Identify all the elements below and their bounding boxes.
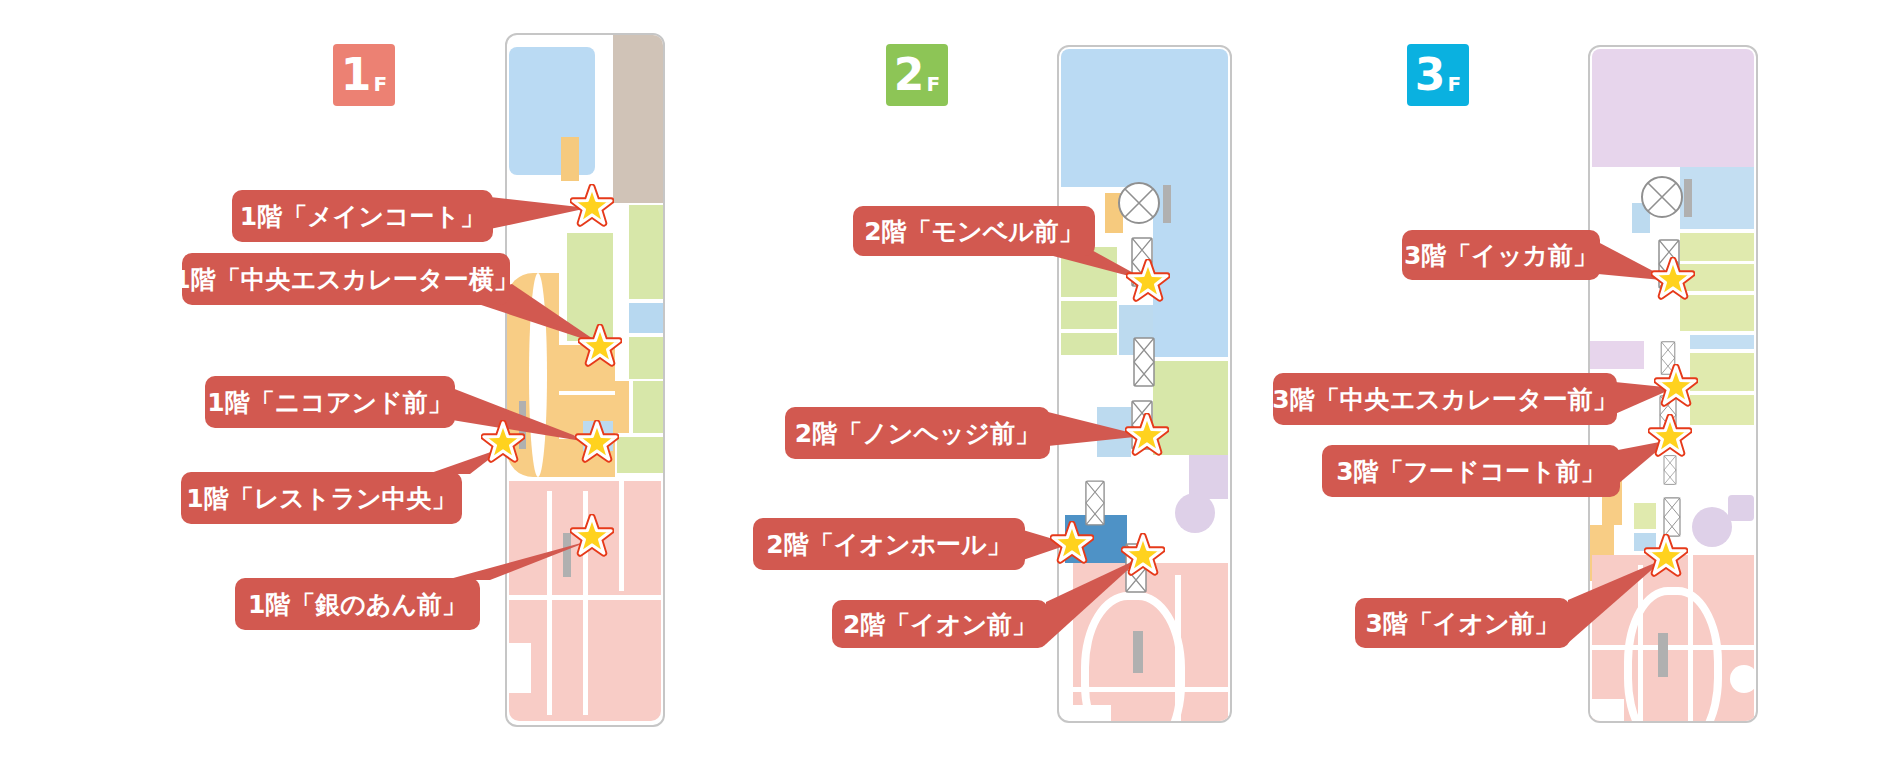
star-marker-1f-central-escalator <box>578 324 622 370</box>
callout-label-2f-aeon: 2階「イオン前」 <box>832 600 1048 648</box>
star-marker-3f-food-court <box>1648 414 1692 460</box>
callout-label-2f-nonhedge: 2階「ノンヘッジ前」 <box>785 407 1050 459</box>
floor-number: 2 <box>894 53 925 97</box>
star-marker-3f-ikka <box>1651 257 1695 303</box>
star-marker-3f-central-escalator <box>1654 364 1698 410</box>
callout-label-3f-food-court: 3階「フードコート前」 <box>1322 445 1620 497</box>
star-marker-2f-montbell <box>1126 259 1170 305</box>
star-marker-1f-restaurant <box>481 420 525 466</box>
region-shop <box>629 303 663 333</box>
walkway <box>619 481 624 591</box>
region-shop <box>633 381 663 433</box>
region-shop <box>617 437 663 473</box>
region-shop <box>629 205 663 299</box>
floor-map-2f <box>1057 45 1232 723</box>
callout-label-1f-central-escalator: 1階「中央エスカレーター横」 <box>182 253 510 305</box>
callout-label-3f-central-escalator: 3階「中央エスカレーター前」 <box>1273 373 1617 425</box>
callout-label-2f-montbell: 2階「モンベル前」 <box>853 206 1095 256</box>
floor-number: 3 <box>1415 53 1446 97</box>
walkway <box>509 595 661 600</box>
region-rest-area <box>1728 495 1754 521</box>
walkway <box>1073 687 1228 692</box>
callout-label-2f-aeon-hall: 2階「イオンホール」 <box>753 518 1025 570</box>
floor-suffix: F <box>1447 72 1461 96</box>
escalator-icon <box>1085 479 1105 527</box>
region-shop <box>1690 335 1754 349</box>
floor-badge-3f: 3F <box>1407 44 1469 106</box>
star-marker-1f-niko-and <box>575 420 619 466</box>
callout-label-3f-ikka: 3階「イッカ前」 <box>1402 230 1600 280</box>
walkway <box>1730 665 1758 693</box>
region-tan-store <box>613 35 663 203</box>
elevator <box>1133 631 1143 673</box>
region-shop <box>629 337 663 379</box>
callout-label-1f-niko-and: 1階「ニコアンド前」 <box>205 376 455 428</box>
floor-number: 1 <box>341 53 372 97</box>
floor-suffix: F <box>373 72 387 96</box>
walkway <box>1175 575 1181 723</box>
star-marker-2f-aeon-hall <box>1050 521 1094 567</box>
walkway <box>1061 297 1117 301</box>
floor-map-figure: 1F 2F 3F <box>0 0 1902 760</box>
central-escalator-landing-icon <box>1640 175 1684 219</box>
star-marker-3f-aeon <box>1644 534 1688 580</box>
callout-label-1f-ginnoan: 1階「銀のあん前」 <box>235 578 480 630</box>
escalator-icon <box>1660 497 1684 537</box>
walkway <box>559 391 615 395</box>
elevator <box>1684 179 1692 217</box>
elevator <box>1658 633 1668 677</box>
region-shop <box>1590 341 1644 369</box>
star-marker-2f-aeon <box>1121 533 1165 579</box>
entrance-notch <box>1590 699 1624 723</box>
escalator-icon <box>1133 335 1155 389</box>
entrance-notch <box>1073 705 1111 723</box>
central-escalator-landing-icon <box>1117 181 1161 225</box>
floor-map-1f <box>505 33 665 727</box>
star-marker-1f-main-court <box>570 184 614 230</box>
region-shop <box>1690 395 1754 425</box>
floor-badge-2f: 2F <box>886 44 948 106</box>
region-shop <box>1061 247 1117 355</box>
region-anchor-store <box>1592 49 1754 167</box>
walkway <box>1061 329 1117 333</box>
star-marker-2f-nonhedge <box>1125 413 1169 459</box>
star-marker-1f-ginnoan <box>570 514 614 560</box>
region-shop <box>561 137 579 181</box>
walkway <box>529 273 547 477</box>
callout-label-1f-restaurant: 1階「レストラン中央」 <box>181 472 462 524</box>
region-rest-area <box>1175 493 1215 533</box>
floor-suffix: F <box>926 72 940 96</box>
region-anchor-store <box>1061 49 1228 187</box>
region-anchor-store <box>509 47 595 175</box>
entrance-notch <box>507 643 531 693</box>
region-rest-area <box>1692 507 1732 547</box>
floor-badge-1f: 1F <box>333 44 395 106</box>
callout-label-1f-main-court: 1階「メインコート」 <box>232 190 493 242</box>
walkway <box>547 491 552 715</box>
region-shop <box>1690 353 1754 391</box>
elevator <box>1163 185 1171 223</box>
callout-label-3f-aeon: 3階「イオン前」 <box>1355 598 1570 648</box>
region-shop <box>1634 503 1656 529</box>
walkway-loop <box>1624 587 1722 723</box>
